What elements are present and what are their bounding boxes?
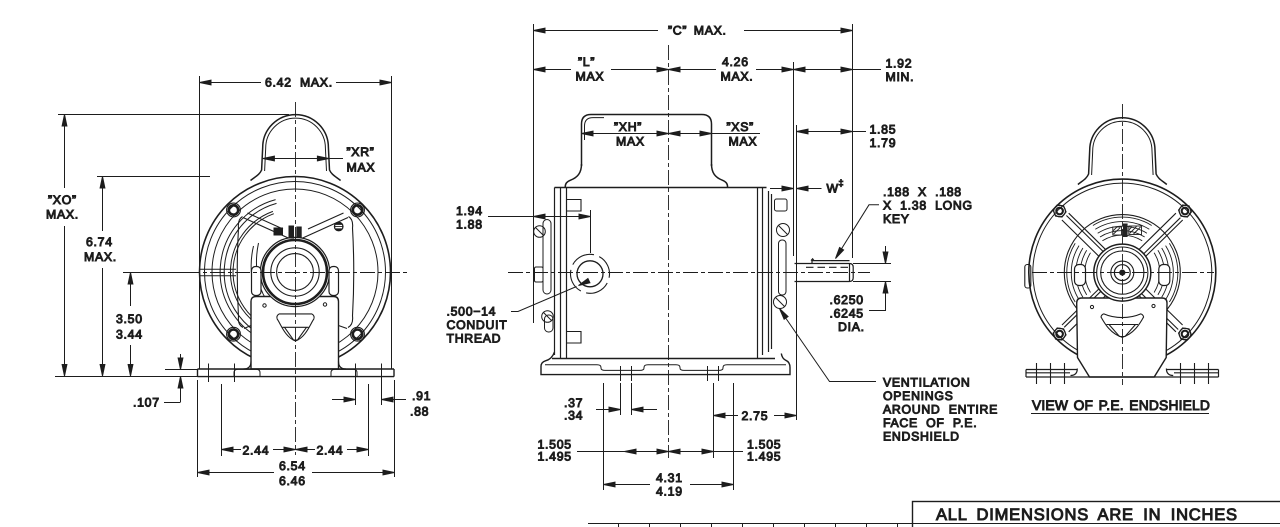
svg-text:.107: .107 bbox=[133, 396, 160, 410]
svg-text:4.31: 4.31 bbox=[656, 471, 683, 485]
svg-text:MAX.: MAX. bbox=[84, 250, 117, 264]
svg-text:.6250: .6250 bbox=[830, 293, 864, 307]
svg-text:.91: .91 bbox=[412, 389, 431, 403]
svg-text:MAX.: MAX. bbox=[46, 208, 79, 222]
svg-text:1.94: 1.94 bbox=[456, 204, 483, 218]
svg-text:6.54: 6.54 bbox=[279, 459, 306, 473]
svg-text:CONDUIT: CONDUIT bbox=[447, 318, 508, 332]
svg-text:ENDSHIELD: ENDSHIELD bbox=[883, 430, 960, 444]
svg-text:4.19: 4.19 bbox=[656, 485, 683, 499]
svg-text:3.50: 3.50 bbox=[116, 312, 143, 326]
svg-text:1.495: 1.495 bbox=[747, 450, 781, 464]
svg-text:.6245: .6245 bbox=[830, 307, 864, 321]
svg-text:6.42 MAX.: 6.42 MAX. bbox=[265, 76, 333, 90]
svg-text:1.88: 1.88 bbox=[456, 218, 483, 232]
svg-text:”XH”: ”XH” bbox=[614, 120, 642, 134]
svg-text:AROUND ENTIRE: AROUND ENTIRE bbox=[883, 403, 998, 417]
svg-text:1.92: 1.92 bbox=[886, 57, 913, 71]
svg-text:.88: .88 bbox=[410, 405, 429, 419]
svg-text:1.495: 1.495 bbox=[538, 450, 572, 464]
svg-text:THREAD: THREAD bbox=[447, 332, 502, 346]
svg-text:”XO”: ”XO” bbox=[48, 193, 77, 207]
svg-text:DIA.: DIA. bbox=[838, 320, 865, 334]
svg-text:X 1.38 LONG: X 1.38 LONG bbox=[883, 199, 973, 213]
svg-text:”XR”: ”XR” bbox=[347, 145, 375, 159]
svg-text:1.85: 1.85 bbox=[870, 123, 897, 137]
svg-text:MAX: MAX bbox=[616, 135, 645, 149]
svg-text:2.75: 2.75 bbox=[742, 409, 769, 423]
svg-text:”C” MAX.: ”C” MAX. bbox=[668, 24, 727, 38]
svg-text:”XS”: ”XS” bbox=[727, 120, 754, 134]
svg-text:MAX: MAX bbox=[576, 70, 605, 84]
svg-text:FACE OF P.E.: FACE OF P.E. bbox=[883, 416, 977, 430]
svg-text:.34: .34 bbox=[564, 409, 583, 423]
svg-text:6.46: 6.46 bbox=[279, 474, 306, 488]
svg-text:MAX.: MAX. bbox=[721, 70, 754, 84]
svg-text:‡: ‡ bbox=[839, 178, 844, 188]
svg-text:2.44: 2.44 bbox=[317, 444, 344, 458]
svg-text:W: W bbox=[827, 182, 839, 196]
svg-text:2.44: 2.44 bbox=[243, 444, 270, 458]
svg-text:OPENINGS: OPENINGS bbox=[883, 389, 954, 403]
svg-text:3.44: 3.44 bbox=[116, 328, 143, 342]
svg-text:6.74: 6.74 bbox=[86, 235, 113, 249]
svg-text:VIEW OF P.E. ENDSHIELD: VIEW OF P.E. ENDSHIELD bbox=[1032, 398, 1210, 413]
svg-text:4.26: 4.26 bbox=[722, 55, 749, 69]
svg-text:1.79: 1.79 bbox=[870, 136, 897, 150]
svg-text:MAX: MAX bbox=[347, 161, 376, 175]
svg-text:ALL DIMENSIONS ARE IN INCHES: ALL DIMENSIONS ARE IN INCHES bbox=[936, 506, 1238, 524]
svg-text:KEY: KEY bbox=[883, 212, 910, 226]
svg-text:.500−14: .500−14 bbox=[447, 305, 497, 319]
svg-text:”L”: ”L” bbox=[578, 55, 595, 69]
svg-text:VENTILATION: VENTILATION bbox=[883, 376, 970, 390]
svg-text:MIN.: MIN. bbox=[886, 70, 915, 84]
svg-text:.188 X .188: .188 X .188 bbox=[883, 185, 962, 199]
svg-text:MAX: MAX bbox=[729, 135, 758, 149]
